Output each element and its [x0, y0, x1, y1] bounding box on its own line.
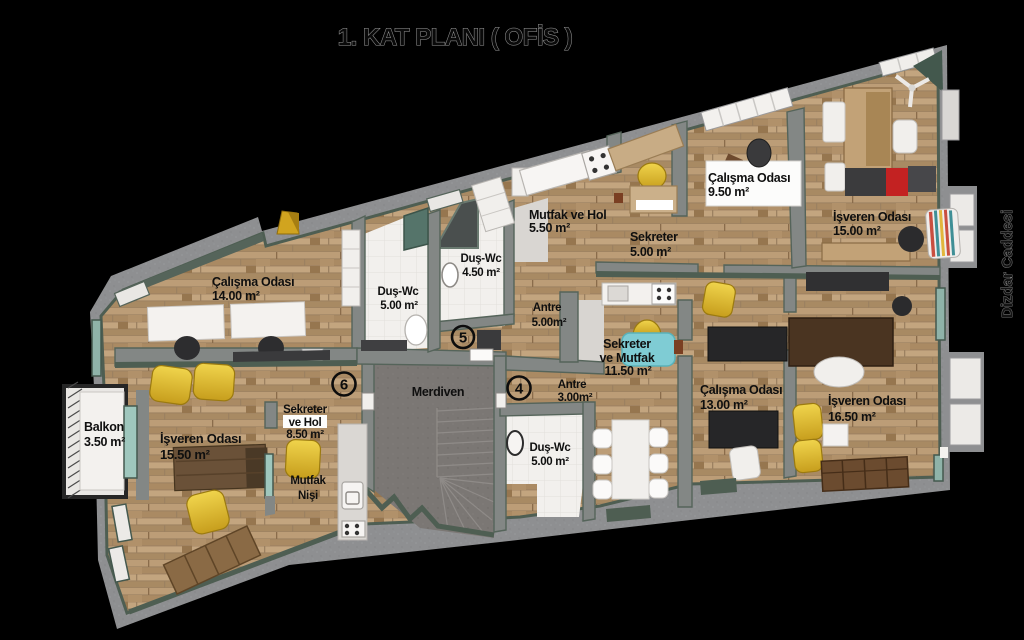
svg-text:ve Hol: ve Hol [289, 417, 322, 429]
svg-text:4.50 m²: 4.50 m² [462, 267, 500, 279]
svg-text:5.00 m²: 5.00 m² [380, 300, 418, 312]
svg-text:15.50 m²: 15.50 m² [160, 447, 211, 462]
svg-text:1. KAT PLANI ( OFİS ): 1. KAT PLANI ( OFİS ) [338, 24, 572, 51]
svg-text:Nişi: Nişi [298, 490, 318, 502]
svg-text:5.00m²: 5.00m² [532, 317, 567, 329]
svg-text:Sekreter: Sekreter [283, 404, 327, 416]
svg-text:16.50 m²: 16.50 m² [828, 410, 876, 424]
svg-text:İşveren Odası: İşveren Odası [828, 393, 906, 408]
svg-text:ve Mutfak: ve Mutfak [600, 351, 655, 365]
svg-text:5.00 m²: 5.00 m² [630, 245, 671, 259]
svg-text:Çalışma Odası: Çalışma Odası [700, 383, 782, 397]
svg-text:3.50 m²: 3.50 m² [84, 435, 125, 449]
svg-text:İşveren Odası: İşveren Odası [160, 431, 241, 446]
svg-text:15.00 m²: 15.00 m² [833, 224, 881, 238]
svg-text:5.50 m²: 5.50 m² [529, 221, 570, 235]
svg-text:İşveren Odası: İşveren Odası [833, 209, 911, 224]
svg-text:8.50 m²: 8.50 m² [286, 429, 324, 441]
svg-text:4: 4 [515, 381, 524, 398]
svg-text:9.50 m²: 9.50 m² [708, 185, 749, 199]
svg-text:5: 5 [459, 330, 467, 347]
svg-text:Mutfak ve Hol: Mutfak ve Hol [529, 208, 606, 222]
svg-text:Duş-Wc: Duş-Wc [529, 442, 571, 454]
svg-text:Sekreter: Sekreter [603, 337, 651, 351]
svg-text:Antre: Antre [533, 302, 562, 314]
svg-text:5.00 m²: 5.00 m² [531, 456, 569, 468]
svg-text:3.00m²: 3.00m² [558, 392, 593, 404]
svg-text:11.50 m²: 11.50 m² [605, 364, 652, 378]
svg-text:6: 6 [340, 377, 348, 394]
svg-text:Merdiven: Merdiven [412, 385, 464, 399]
svg-text:Mutfak: Mutfak [290, 475, 326, 487]
svg-text:Antre: Antre [558, 379, 587, 391]
svg-text:Duş-Wc: Duş-Wc [460, 253, 502, 265]
svg-text:Duş-Wc: Duş-Wc [377, 286, 419, 298]
svg-text:Balkon: Balkon [84, 420, 124, 434]
svg-text:Çalışma Odası: Çalışma Odası [708, 171, 790, 185]
svg-text:Çalışma Odası: Çalışma Odası [212, 275, 294, 289]
svg-text:13.00 m²: 13.00 m² [700, 398, 748, 412]
svg-text:14.00 m²: 14.00 m² [212, 289, 260, 303]
svg-text:Sekreter: Sekreter [630, 230, 678, 244]
svg-text:Dizdar Caddesi: Dizdar Caddesi [999, 210, 1016, 318]
